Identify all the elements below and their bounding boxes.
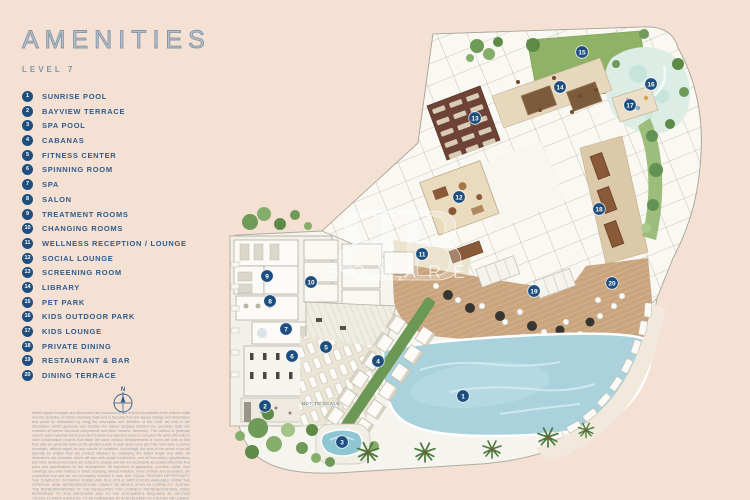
watermark-monogram: B: [396, 186, 466, 303]
brochure-page: B B BOMARE 12345678910111213141516171819…: [0, 0, 750, 500]
legend-item-number: 14: [22, 282, 33, 293]
legend-item-number: 19: [22, 355, 33, 366]
svg-text:6: 6: [290, 353, 294, 360]
legend-item: 12SOCIAL LOUNGE: [22, 253, 232, 264]
svg-text:15: 15: [578, 49, 586, 56]
plan-marker-16: 16: [645, 78, 658, 91]
legend-item: 11WELLNESS RECEPTION / LOUNGE: [22, 238, 232, 249]
legend-item: 16KIDS OUTDOOR PARK: [22, 311, 232, 322]
svg-text:9: 9: [265, 273, 269, 280]
plunge-pool: [257, 328, 267, 338]
tree: [641, 223, 651, 233]
disclaimer-text: Stated square footages and dimensions ar…: [32, 411, 190, 500]
tree: [466, 54, 474, 62]
legend-item-label: SUNRISE POOL: [42, 92, 107, 101]
svg-text:12: 12: [455, 194, 463, 201]
watermark-monogram-mirrored: B: [334, 186, 404, 303]
plan-marker-1: 1: [457, 390, 470, 403]
tree: [672, 58, 684, 70]
plan-marker-3: 3: [336, 436, 349, 449]
page-title: AMENITIES: [22, 26, 232, 55]
plan-marker-17: 17: [624, 99, 637, 112]
tree: [647, 199, 659, 211]
legend-item-label: CHANGING ROOMS: [42, 224, 123, 233]
legend-item-label: SCREENING ROOM: [42, 268, 122, 277]
svg-text:11: 11: [419, 251, 426, 258]
svg-text:10: 10: [307, 279, 315, 286]
legend-item-number: 7: [22, 179, 33, 190]
tree: [665, 119, 675, 129]
tree: [483, 48, 495, 60]
tree: [646, 130, 658, 142]
legend-item: 8SALON: [22, 194, 232, 205]
tree: [493, 37, 503, 47]
plan-marker-4: 4: [372, 355, 385, 368]
legend-item-label: WELLNESS RECEPTION / LOUNGE: [42, 239, 187, 248]
legend-item-number: 2: [22, 106, 33, 117]
legend-item-label: PRIVATE DINING: [42, 342, 112, 351]
legend-item: 2BAYVIEW TERRACE: [22, 106, 232, 117]
legend-item: 17KIDS LOUNGE: [22, 326, 232, 337]
legend-panel: AMENITIES LEVEL 7 1SUNRISE POOL2BAYVIEW …: [22, 26, 232, 381]
svg-text:19: 19: [530, 288, 538, 295]
legend-item-number: 10: [22, 223, 33, 234]
svg-text:7: 7: [284, 326, 288, 333]
scale-note: NOT TO SCALE: [190, 401, 340, 406]
plan-marker-7: 7: [280, 323, 293, 336]
svg-text:3: 3: [340, 439, 344, 446]
legend-item: 1SUNRISE POOL: [22, 91, 232, 102]
legend-list: 1SUNRISE POOL2BAYVIEW TERRACE3SPA POOL4C…: [22, 91, 232, 381]
legend-item-number: 12: [22, 253, 33, 264]
legend-item-label: KIDS OUTDOOR PARK: [42, 312, 135, 321]
plan-marker-8: 8: [264, 295, 277, 308]
legend-item-number: 11: [22, 238, 33, 249]
plan-marker-11: 11: [416, 248, 429, 261]
legend-item: 20DINING TERRACE: [22, 370, 232, 381]
legend-item: 13SCREENING ROOM: [22, 267, 232, 278]
legend-item-label: SOCIAL LOUNGE: [42, 254, 113, 263]
legend-item-number: 1: [22, 91, 33, 102]
legend-item-number: 16: [22, 311, 33, 322]
legend-item-number: 8: [22, 194, 33, 205]
legend-item-number: 15: [22, 297, 33, 308]
plan-marker-14: 14: [554, 81, 567, 94]
legend-item-label: DINING TERRACE: [42, 371, 116, 380]
legend-item: 7SPA: [22, 179, 232, 190]
legend-item: 6SPINNING ROOM: [22, 164, 232, 175]
legend-item-number: 18: [22, 341, 33, 352]
svg-text:1: 1: [461, 393, 465, 400]
legend-item: 15PET PARK: [22, 297, 232, 308]
toy: [644, 96, 648, 100]
tree: [639, 29, 649, 39]
legend-item-label: PET PARK: [42, 298, 85, 307]
legend-item: 19RESTAURANT & BAR: [22, 355, 232, 366]
svg-text:4: 4: [376, 358, 380, 365]
tree: [612, 60, 620, 68]
tree: [649, 163, 663, 177]
plan-marker-5: 5: [320, 341, 333, 354]
plan-marker-12: 12: [453, 191, 466, 204]
svg-text:20: 20: [608, 280, 616, 287]
tree: [470, 39, 484, 53]
legend-item-label: RESTAURANT & BAR: [42, 356, 130, 365]
legend-item-label: SALON: [42, 195, 72, 204]
legend-item-number: 20: [22, 370, 33, 381]
svg-text:17: 17: [626, 102, 634, 109]
legend-item: 4CABANAS: [22, 135, 232, 146]
svg-text:18: 18: [595, 206, 603, 213]
svg-text:16: 16: [647, 81, 655, 88]
legend-item-number: 13: [22, 267, 33, 278]
plan-marker-10: 10: [305, 276, 318, 289]
play-mound: [629, 65, 647, 83]
legend-item-number: 6: [22, 164, 33, 175]
legend-item-label: BAYVIEW TERRACE: [42, 107, 125, 116]
tree: [526, 38, 540, 52]
svg-text:13: 13: [471, 115, 479, 122]
legend-item-label: SPA POOL: [42, 121, 86, 130]
plan-marker-18: 18: [593, 203, 606, 216]
legend-item-label: LIBRARY: [42, 283, 80, 292]
level-subtitle: LEVEL 7: [22, 65, 232, 74]
legend-item-label: SPINNING ROOM: [42, 165, 113, 174]
legend-item-label: SPA: [42, 180, 59, 189]
legend-item: 10CHANGING ROOMS: [22, 223, 232, 234]
legend-item-number: 5: [22, 150, 33, 161]
legend-item: 5FITNESS CENTER: [22, 150, 232, 161]
legend-item-number: 4: [22, 135, 33, 146]
legend-item: 9TREATMENT ROOMS: [22, 209, 232, 220]
svg-text:5: 5: [324, 344, 328, 351]
legend-item-number: 9: [22, 209, 33, 220]
legend-item-label: FITNESS CENTER: [42, 151, 116, 160]
plan-marker-13: 13: [469, 112, 482, 125]
plan-marker-20: 20: [606, 277, 619, 290]
legend-item: 3SPA POOL: [22, 120, 232, 131]
watermark: B B BOMARE: [327, 186, 477, 303]
plan-marker-15: 15: [576, 46, 589, 59]
plan-marker-19: 19: [528, 285, 541, 298]
legend-item-label: TREATMENT ROOMS: [42, 210, 129, 219]
svg-text:14: 14: [556, 84, 564, 91]
plan-marker-6: 6: [286, 350, 299, 363]
watermark-text: BOMARE: [327, 262, 477, 282]
legend-item: 14LIBRARY: [22, 282, 232, 293]
legend-item-label: CABANAS: [42, 136, 84, 145]
trees-above-wing: [242, 207, 312, 230]
plan-marker-9: 9: [261, 270, 274, 283]
svg-text:8: 8: [268, 298, 272, 305]
legend-item-number: 17: [22, 326, 33, 337]
tree: [679, 87, 689, 97]
legend-item: 18PRIVATE DINING: [22, 341, 232, 352]
legend-item-number: 3: [22, 120, 33, 131]
legend-item-label: KIDS LOUNGE: [42, 327, 102, 336]
